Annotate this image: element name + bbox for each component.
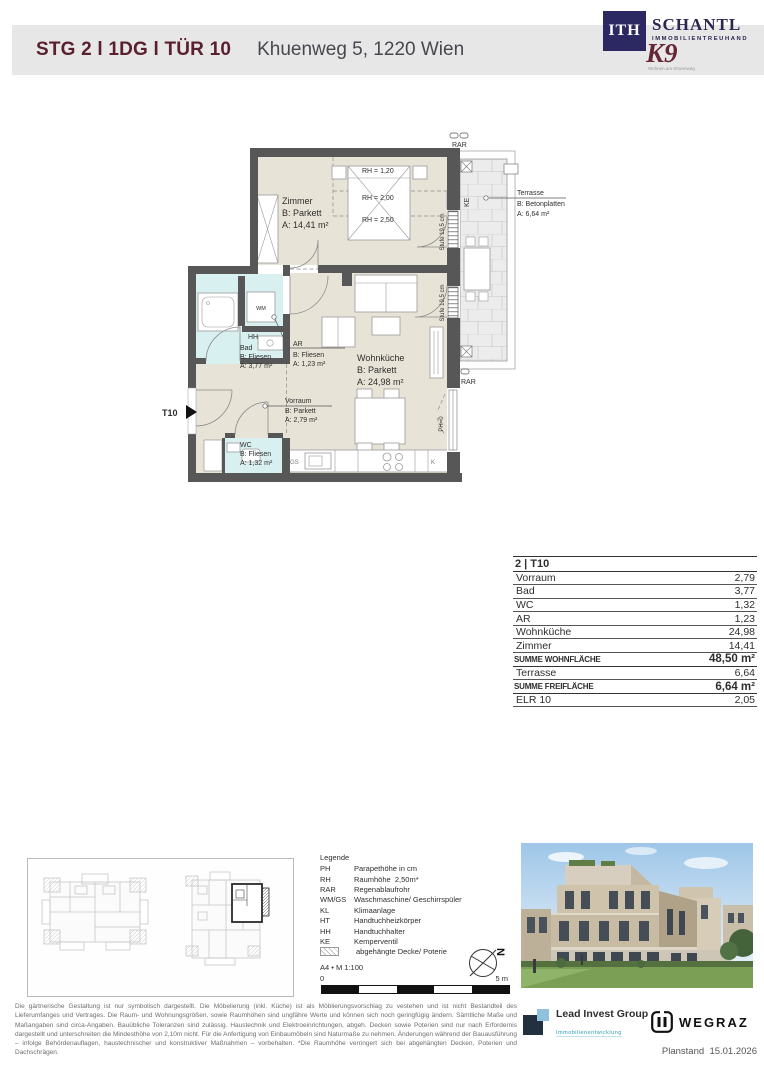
address: Khuenweg 5, 1220 Wien <box>257 39 464 61</box>
k9-logo: K9 <box>646 40 678 67</box>
format-scale-label: A4 • M 1:100 <box>320 963 363 972</box>
french-door-wohnkueche <box>448 287 458 318</box>
kl-unit <box>430 327 443 378</box>
row-value: 6,64 m² <box>715 681 757 693</box>
legend-item: WM/GSWaschmaschine/ Geschirrspüler <box>320 895 518 905</box>
svg-text:A: 3,77 m²: A: 3,77 m² <box>240 363 273 370</box>
table-row: AR1,23 <box>513 612 757 626</box>
row-value: 2,05 <box>735 694 757 706</box>
stufe-label: Stufe 19,5 cm <box>440 284 446 321</box>
row-value: 1,32 <box>735 599 757 611</box>
wegraz-logo: WEGRAZ <box>651 1011 749 1033</box>
vorraum-label: Vorraum <box>285 398 312 405</box>
table-title: 2 | T10 <box>513 558 549 570</box>
k-label: K <box>431 460 435 466</box>
svg-text:A: 2,79 m²: A: 2,79 m² <box>285 417 318 424</box>
table-row: Bad3,77 <box>513 585 757 599</box>
wm-label: WM <box>256 306 266 312</box>
bad-label: Bad <box>240 345 253 352</box>
stufe-label: Stufe 19,5 cm <box>440 213 446 250</box>
unit-title: STG 2 l 1DG l TÜR 10 <box>36 39 231 61</box>
nightstand <box>413 166 427 179</box>
row-value: 3,77 <box>735 585 757 597</box>
legend-title: Legende <box>320 853 518 864</box>
wc-label: WC <box>240 442 252 449</box>
stove-burner <box>384 464 391 471</box>
legend-item: RHRaumhöhe 2,50m* <box>320 874 518 884</box>
ith-logo-text: ITH <box>608 22 640 40</box>
rh-label: RH = 2,00 <box>362 195 394 202</box>
t10-label: T10 <box>162 408 178 418</box>
stove-burner <box>383 453 391 461</box>
row-value: 1,23 <box>735 613 757 625</box>
rar-symbol <box>450 133 458 138</box>
table-row: ELR 102,05 <box>513 694 757 708</box>
ith-logo: ITH <box>603 11 646 51</box>
keyplan-highlighted-unit <box>232 884 269 922</box>
stove-burner <box>396 454 403 461</box>
nightstand <box>332 166 346 179</box>
row-label: Bad <box>513 585 535 597</box>
scale-start-label: 0 <box>320 974 324 983</box>
rar-symbol <box>461 369 469 374</box>
table-row-sum-freiflaeche: SUMME FREIFLÄCHE6,64 m² <box>513 680 757 694</box>
zimmer-label: Zimmer <box>282 196 313 206</box>
disclaimer-text: Die gärtnerische Gestaltung ist nur symb… <box>15 1002 517 1058</box>
dining-table <box>355 398 405 444</box>
row-value: 24,98 <box>729 626 757 638</box>
floor-plan: Zimmer B: Parkett A: 14,41 m² RH = 1,20 … <box>150 125 580 495</box>
svg-text:B: Parkett: B: Parkett <box>357 365 397 375</box>
north-letter: N <box>494 948 506 956</box>
lead-invest-logo: Lead Invest Group Immobilienentwicklung <box>523 1009 648 1039</box>
area-table: 2 | T10 Vorraum2,79 Bad3,77 WC1,32 AR1,2… <box>513 556 757 707</box>
row-label: AR <box>513 613 531 625</box>
scale-bar <box>321 985 510 994</box>
row-label: Vorraum <box>513 572 556 584</box>
lead-invest-name: Lead Invest Group <box>556 1009 648 1021</box>
wegraz-icon <box>651 1011 673 1033</box>
wegraz-name: WEGRAZ <box>679 1015 749 1030</box>
side-table <box>322 317 355 347</box>
row-label: SUMME FREIFLÄCHE <box>513 682 593 691</box>
table-row: Terrasse6,64 <box>513 667 757 681</box>
row-label: SUMME WOHNFLÄCHE <box>513 655 601 664</box>
row-label: Wohnküche <box>513 626 571 638</box>
rh-label: RH = 2,50 <box>362 217 394 224</box>
table-row: WC1,32 <box>513 599 757 613</box>
brand-name: SCHANTL <box>652 15 741 35</box>
washbasin <box>258 336 283 350</box>
ar-label: AR <box>293 341 303 348</box>
stove-burner <box>396 464 403 471</box>
svg-text:B: Fliesen: B: Fliesen <box>293 352 324 359</box>
terrace-table <box>464 248 490 290</box>
svg-text:B: Parkett: B: Parkett <box>282 208 322 218</box>
french-door-zimmer <box>448 211 458 248</box>
svg-text:B: Fliesen: B: Fliesen <box>240 354 271 361</box>
ke-label: KE <box>464 197 471 207</box>
table-row-sum-wohnflaeche: SUMME WOHNFLÄCHE48,50 m² <box>513 653 757 667</box>
legend-item: KLKlimaanlage <box>320 905 518 915</box>
table-row: Zimmer14,41 <box>513 639 757 653</box>
gs-label: GS <box>290 460 299 466</box>
rar-label: RAR <box>461 379 476 386</box>
north-arrow-icon: N <box>463 942 511 984</box>
row-value: 48,50 m² <box>709 653 757 665</box>
wc-sink <box>227 443 240 452</box>
table-row: Vorraum2,79 <box>513 572 757 586</box>
row-label: ELR 10 <box>513 694 551 706</box>
svg-text:B: Parkett: B: Parkett <box>285 408 316 415</box>
svg-text:A: 1,23 m²: A: 1,23 m² <box>293 361 326 368</box>
svg-text:A: 24,98 m²: A: 24,98 m² <box>357 377 404 387</box>
svg-text:A: 1,32 m²: A: 1,32 m² <box>240 460 273 467</box>
legend-item: HTHandtuchheizkörper <box>320 915 518 925</box>
building-photo <box>521 843 753 988</box>
row-label: Terrasse <box>513 667 556 679</box>
lead-invest-sub: Immobilienentwicklung <box>556 1030 622 1037</box>
keyplan-drawings <box>27 858 292 995</box>
svg-text:B: Fliesen: B: Fliesen <box>240 451 271 458</box>
table-row: Wohnküche24,98 <box>513 626 757 640</box>
suspended-ceiling-icon <box>320 947 339 956</box>
svg-text:A: 14,41 m²: A: 14,41 m² <box>282 220 329 230</box>
svg-text:B: Betonplatten: B: Betonplatten <box>517 201 565 208</box>
rh-label: RH = 1,20 <box>362 168 394 175</box>
rar-label: RAR <box>452 142 467 149</box>
svg-text:A: 6,64 m²: A: 6,64 m² <box>517 211 550 218</box>
terrace <box>455 151 518 369</box>
ph0-label: PH=0 <box>439 416 445 432</box>
plan-date: Planstand 15.01.2026 <box>620 1046 757 1057</box>
keyplan-left <box>42 874 148 950</box>
legend-item: RARRegenablaufrohr <box>320 884 518 894</box>
legend-item: HHHandtuchhalter <box>320 926 518 936</box>
row-label: WC <box>513 599 534 611</box>
row-label: Zimmer <box>513 640 552 652</box>
terrasse-label: Terrasse <box>517 190 544 197</box>
wohnkueche-label: Wohnküche <box>357 353 404 363</box>
row-value: 14,41 <box>729 640 757 652</box>
k9-tagline: Wohnen am Khuenweg <box>648 66 695 71</box>
hh-label: HH <box>248 334 258 341</box>
floorplan-page: STG 2 l 1DG l TÜR 10 Khuenweg 5, 1220 Wi… <box>0 0 764 1080</box>
row-value: 6,64 <box>735 667 757 679</box>
row-value: 2,79 <box>735 572 757 584</box>
coffee-table <box>372 317 400 335</box>
table-header: 2 | T10 <box>513 556 757 572</box>
legend-item: PHParapethöhe in cm <box>320 864 518 874</box>
lead-invest-icon <box>523 1009 549 1036</box>
